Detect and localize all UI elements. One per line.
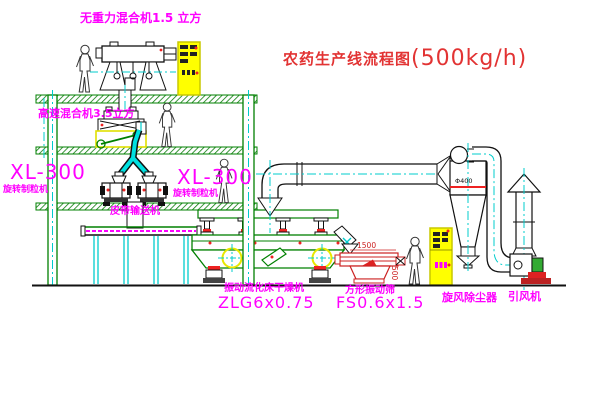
gravity-free-mixer [90, 42, 176, 90]
worker-figure-roof [77, 45, 94, 92]
drawing-title-capacity: (500kg/h) [411, 46, 527, 71]
induced-draft-fan [510, 254, 551, 284]
pesticide-production-line-drawing: 1500 500 Φ400 农药生产线流程图(500kg/h) 无重力混合机1.… [0, 0, 600, 403]
label-granulator-left-model: XL-300 [10, 162, 86, 182]
control-cabinet-ground [430, 228, 452, 285]
label-granulator-right-model: XL-300 [177, 167, 253, 187]
label-belt-conveyor: 皮带输送机 [110, 207, 160, 217]
granulator-right [136, 172, 168, 206]
label-cyclone: 旋风除尘器 [442, 292, 497, 303]
belt-conveyor [81, 226, 201, 284]
granulator-left [100, 172, 132, 206]
label-screen-model: FS0.6x1.5 [336, 295, 424, 311]
label-granulator-right-name: 旋转制粒机 [173, 190, 218, 199]
control-cabinet-roof [178, 42, 200, 95]
drawing-title: 农药生产线流程图(500kg/h) [283, 46, 527, 71]
label-fan: 引风机 [508, 291, 541, 302]
label-gravity-mixer: 无重力混合机1.5 立方 [80, 12, 201, 24]
screen-length-dimension: 1500 [357, 241, 376, 250]
drawing-title-text: 农药生产线流程图 [283, 50, 411, 68]
label-high-speed-mixer: 高速混合机3.5立方 [38, 108, 135, 119]
fluid-bed-dryer [192, 198, 344, 283]
screen-width-dimension: 500 [390, 266, 399, 281]
worker-figure-ground [407, 237, 424, 284]
label-dryer-model: ZLG6x0.75 [218, 295, 315, 311]
cyclone-dust-collector [450, 143, 486, 272]
worker-figure-floor2 [159, 103, 175, 146]
cyclone-inlet-dimension: Φ400 [455, 177, 473, 185]
label-granulator-left-name: 旋转制粒机 [3, 186, 48, 195]
